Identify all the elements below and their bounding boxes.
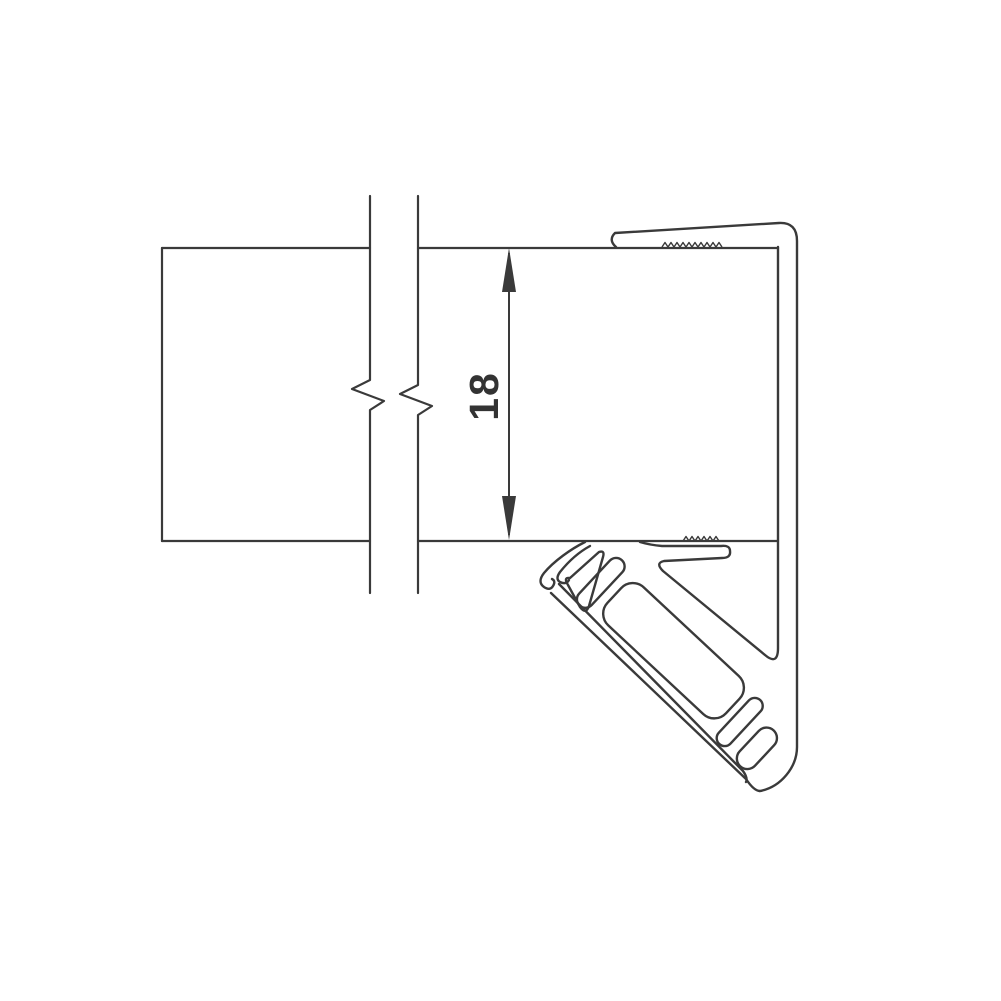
profile-lip-and-outer-wall (612, 223, 797, 791)
seal-foot-lobe (733, 723, 782, 773)
frame-profile (612, 223, 797, 791)
break-line-left (352, 196, 384, 593)
dimension-arrowhead-down (502, 496, 516, 540)
grip-serrations (662, 243, 722, 542)
break-line-right (400, 196, 432, 593)
serration-top (662, 243, 722, 248)
seal-main-chamber (597, 576, 751, 725)
technical-drawing: 18 (0, 0, 1001, 1001)
dimension: 18 (461, 248, 516, 540)
seal-flap (541, 542, 796, 791)
seal-lip-outer-edge (551, 593, 760, 791)
dimension-label: 18 (461, 371, 507, 421)
break-lines (352, 196, 432, 593)
drawing-canvas: 18 (0, 0, 1001, 1001)
dimension-arrowhead-up (502, 248, 516, 292)
serration-bottom (683, 537, 719, 542)
profile-inner-wall-and-grip-arm (640, 247, 778, 659)
seal-end-cap-lower (713, 695, 766, 750)
